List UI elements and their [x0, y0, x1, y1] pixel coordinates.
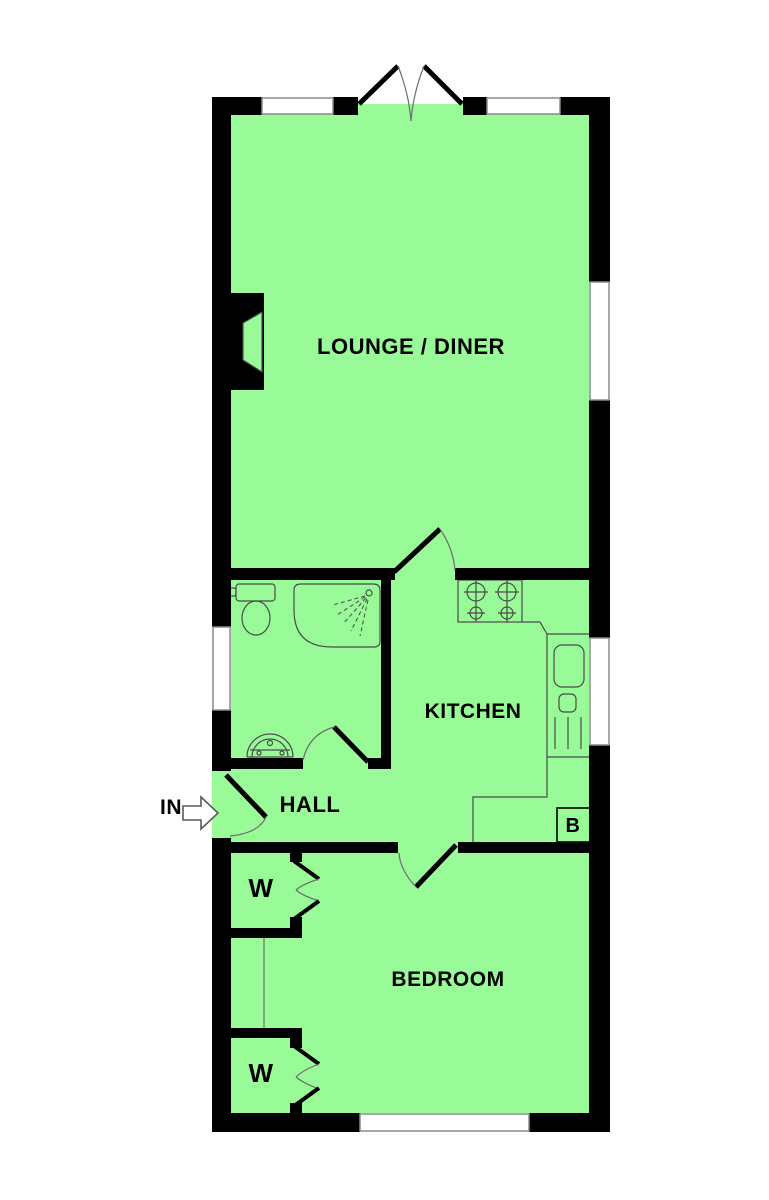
floor-entrance-opening	[212, 771, 231, 838]
wardrobe-top-label: W	[248, 873, 273, 903]
window-icon	[487, 98, 560, 114]
floorplan-page: LOUNGE / DINER KITCHEN HALL BEDROOM W W …	[0, 0, 769, 1200]
hall-label: HALL	[280, 792, 341, 817]
kitchen-label: KITCHEN	[425, 700, 522, 723]
bedroom-label: BEDROOM	[391, 968, 504, 991]
fireplace-recess-icon	[231, 293, 264, 390]
entrance-label: IN	[160, 796, 182, 819]
window-icon	[262, 98, 333, 114]
window-icon	[590, 638, 609, 745]
boiler-label: B	[566, 815, 581, 837]
lounge-label: LOUNGE / DINER	[317, 334, 505, 359]
window-icon	[213, 627, 230, 710]
floorplan-drawing: LOUNGE / DINER KITCHEN HALL BEDROOM W W …	[0, 0, 769, 1200]
floor-main	[231, 114, 589, 1113]
window-icon	[360, 1114, 529, 1131]
wardrobe-bottom-label: W	[248, 1058, 273, 1088]
floor-area	[212, 104, 589, 1113]
window-icon	[590, 282, 609, 400]
